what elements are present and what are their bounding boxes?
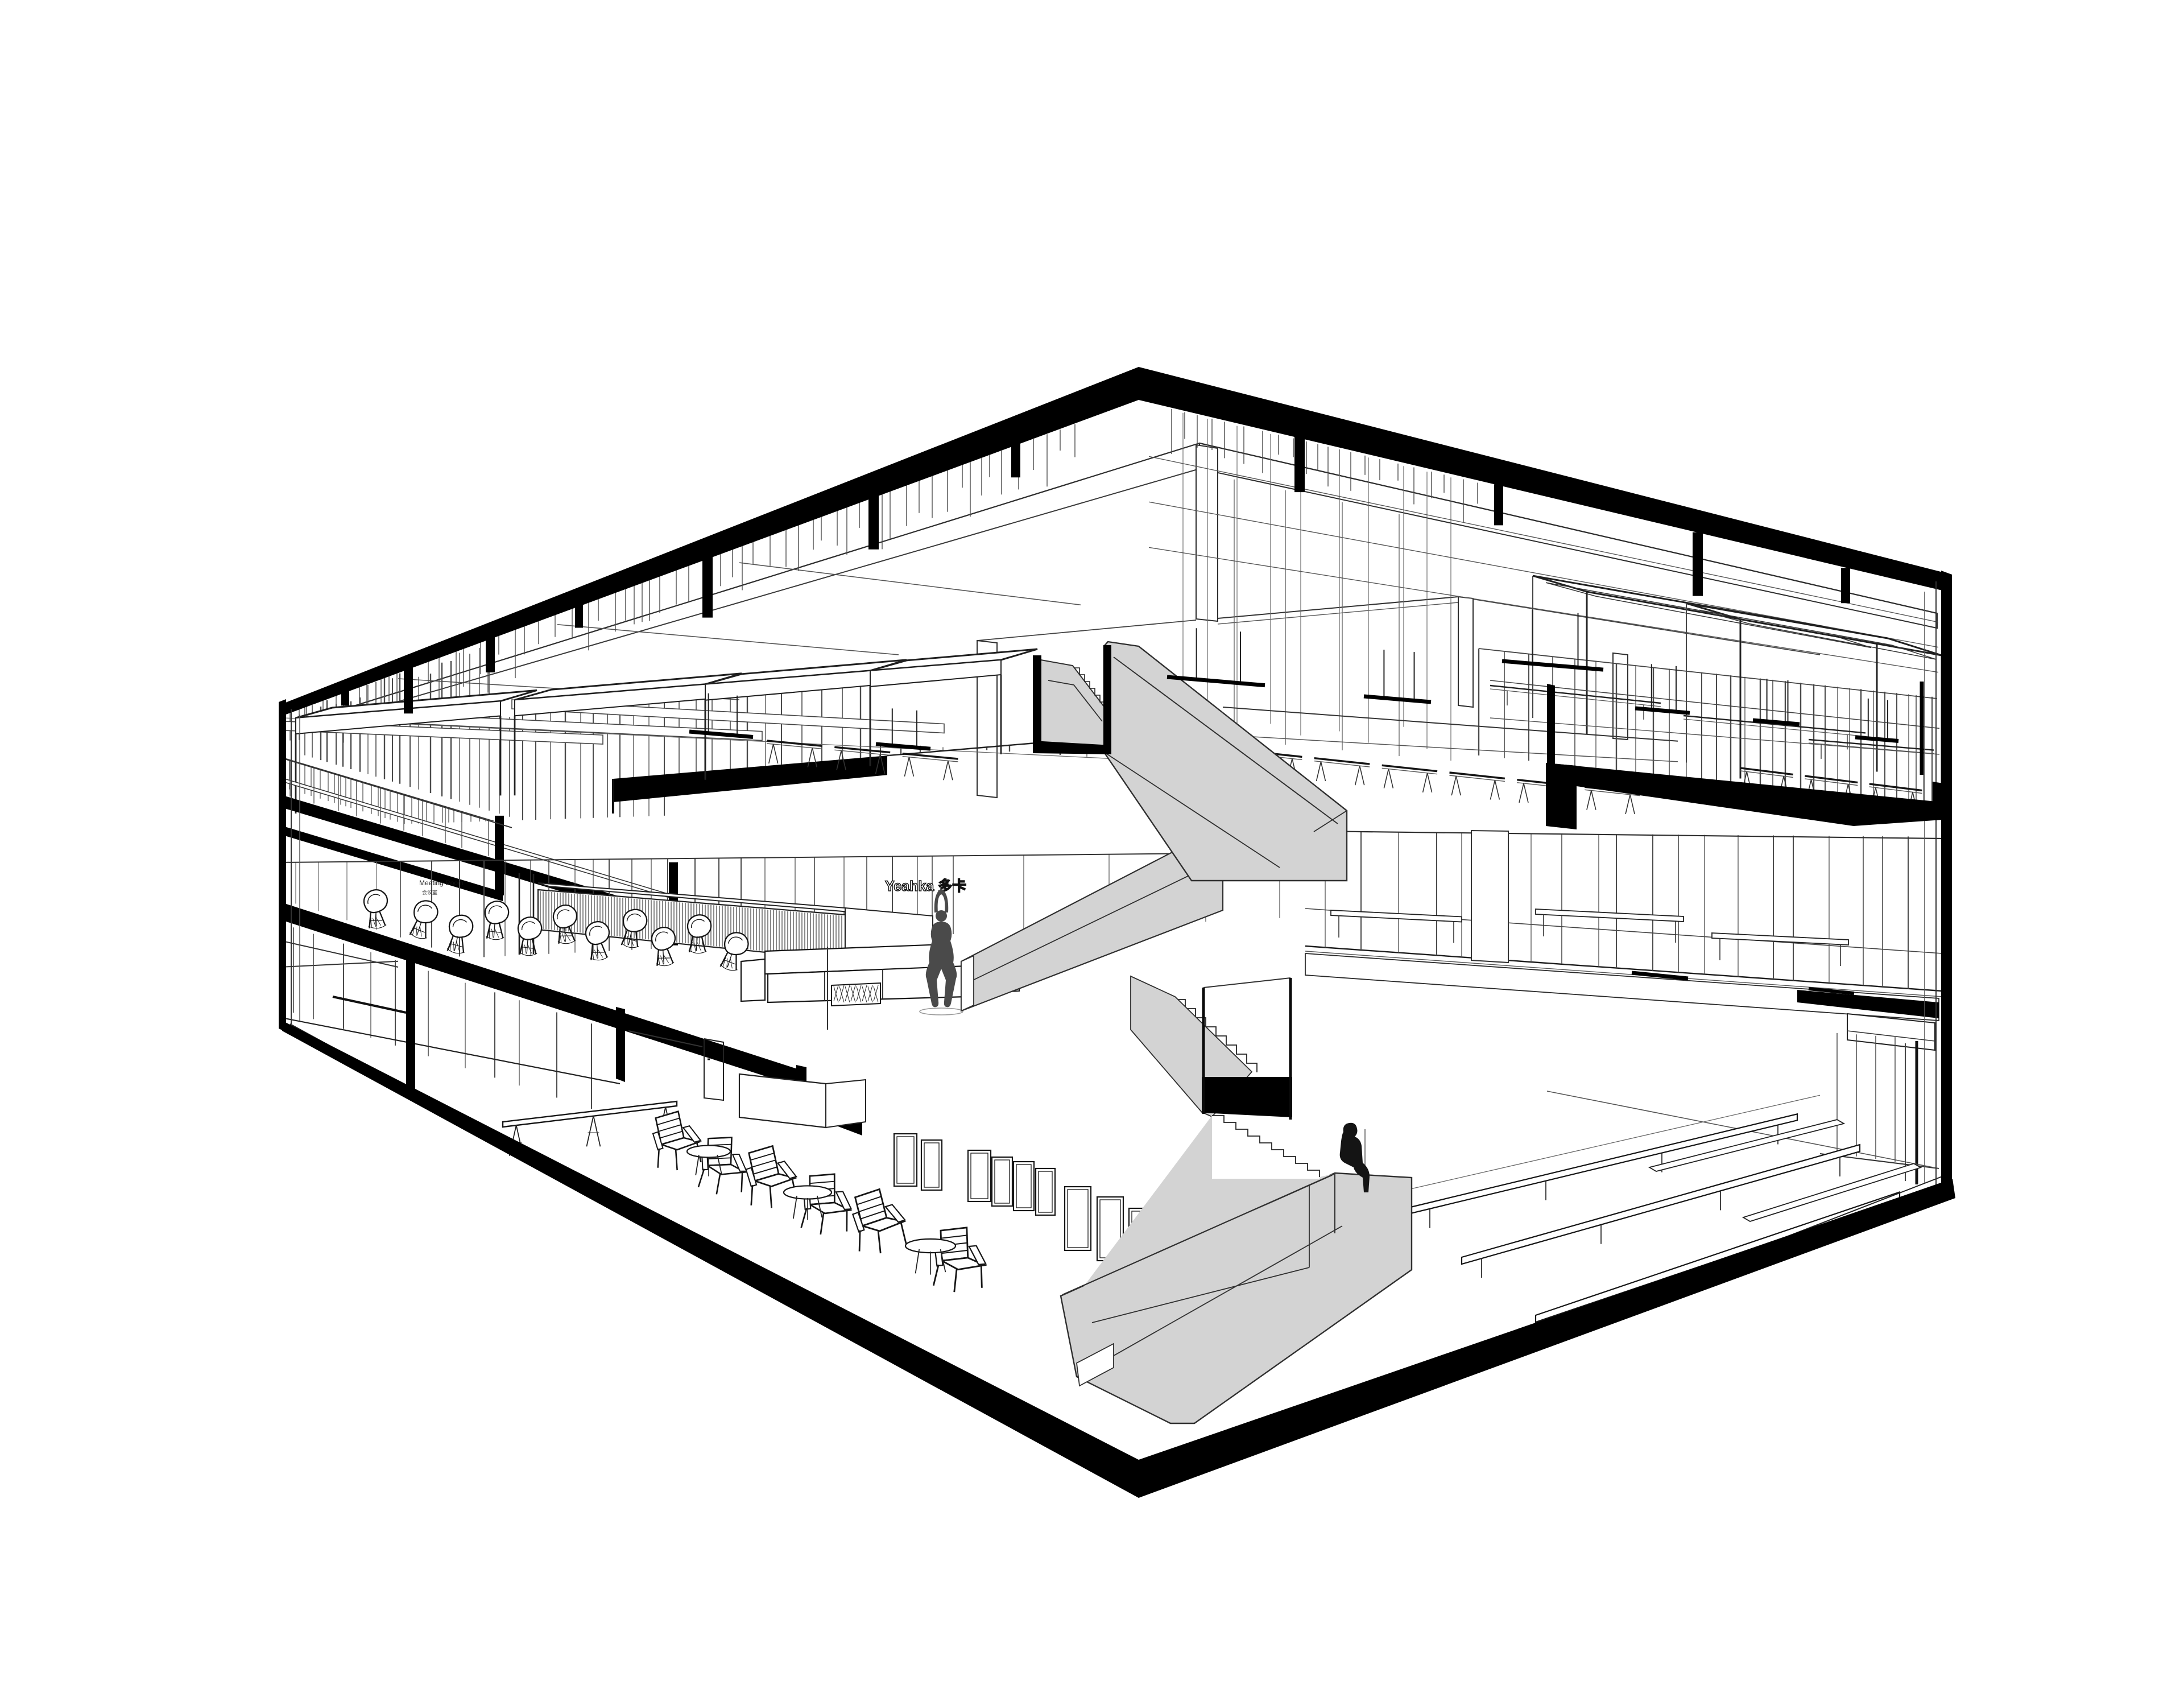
- svg-text:Meeting Room: Meeting Room: [419, 879, 464, 887]
- svg-text:会议室: 会议室: [422, 889, 437, 895]
- svg-text:Yeahka 多卡: Yeahka 多卡: [885, 878, 966, 894]
